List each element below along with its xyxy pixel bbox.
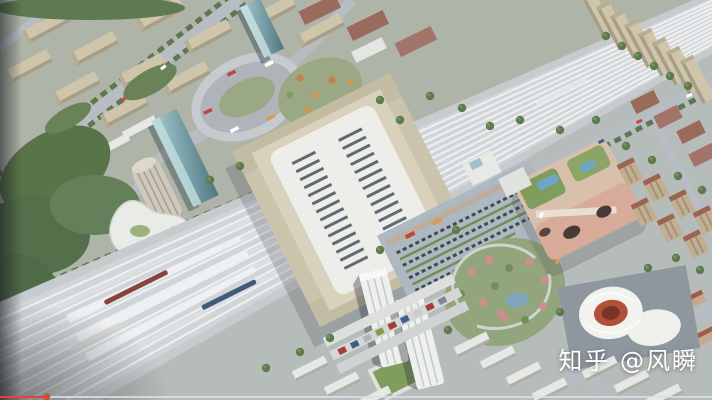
video-frame: 知乎 @风瞬 [0, 0, 712, 400]
vignette-bottom-left [0, 250, 260, 400]
video-progress-bar[interactable] [0, 396, 712, 398]
progress-played [0, 396, 47, 398]
pond [505, 293, 529, 307]
aerial-city-render [0, 0, 712, 400]
progress-playhead[interactable] [44, 394, 50, 400]
watermark: 知乎 @风瞬 [558, 341, 698, 376]
